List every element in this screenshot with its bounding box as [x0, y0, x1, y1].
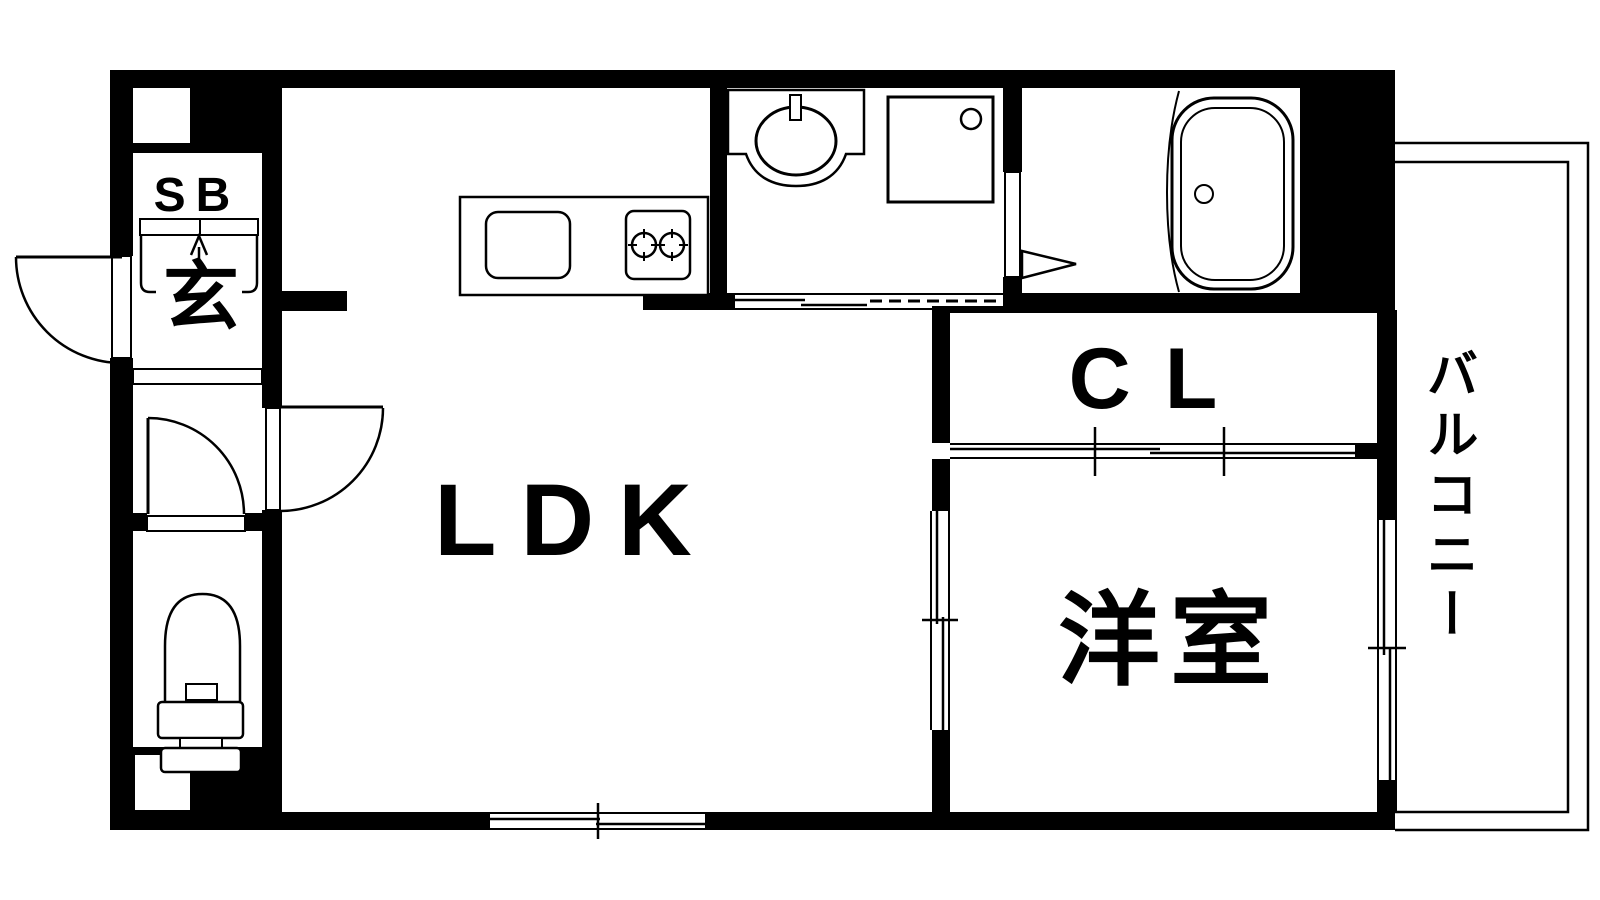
- wall-stub-kitchen: [280, 291, 347, 311]
- toilet: [158, 594, 243, 772]
- western-room-label: 洋室: [1058, 590, 1282, 692]
- entrance-corner-bracket-left: [141, 236, 156, 292]
- wall-kitchen-washroom: [710, 88, 727, 310]
- washbasin-faucet: [790, 95, 801, 120]
- wall-middle-lower: [932, 730, 950, 812]
- ldk-western-room-sliding-partition: [922, 511, 958, 730]
- wall-right-upper: [1377, 310, 1397, 520]
- toilet-lid-detail: [186, 684, 217, 700]
- wall-block-topright: [1300, 88, 1395, 310]
- wall-washroom-bath-upper: [1003, 88, 1022, 172]
- entrance-step: [133, 369, 262, 384]
- washroom-sliding-door: [735, 294, 867, 309]
- wall-stub-toilet-right: [245, 513, 262, 531]
- wall-stub-toilet-left: [133, 513, 147, 531]
- floor-plan: SB 玄 LDK CL 洋室 バルコニー: [0, 0, 1600, 900]
- shoe-box-label: SB: [154, 172, 241, 220]
- wall-hall-right: [262, 510, 282, 750]
- wall-entrance-right: [262, 153, 282, 408]
- bathtub-drain: [1195, 185, 1213, 203]
- toilet-door-threshold: [147, 516, 245, 531]
- bathroom-door-slot: [1005, 172, 1020, 277]
- wall-left-upper: [110, 88, 133, 256]
- entrance-door-swing-arc: [16, 257, 122, 363]
- ldk-door-leaf: [266, 408, 280, 510]
- meter-box-niche: [133, 88, 190, 143]
- bathtub: [1172, 98, 1293, 289]
- wall-right-lower: [1377, 780, 1397, 812]
- washing-machine-drain: [961, 109, 981, 129]
- wall-top: [110, 70, 1395, 88]
- entrance-corner-bracket-right: [242, 236, 257, 292]
- entrance-label: 玄: [163, 260, 239, 336]
- bathroom-door-direction-arrow: [1022, 251, 1076, 278]
- balcony-sliding-window: [1368, 520, 1406, 780]
- toilet-tank: [158, 702, 243, 738]
- closet-sliding-door: [950, 427, 1355, 476]
- balcony-label: バルコニー: [1421, 347, 1473, 647]
- kitchen-counter: [460, 197, 708, 295]
- wall-bottom-right: [705, 812, 1395, 830]
- toilet-door-swing-arc: [148, 418, 244, 514]
- ldk-label: LDK: [434, 469, 716, 571]
- wall-left-lower: [110, 358, 133, 812]
- wall-bottom-left: [110, 812, 490, 830]
- floor-plan-drawing: [0, 0, 1600, 900]
- wall-stub-closet-door: [1355, 443, 1377, 459]
- ldk-bottom-window: [490, 803, 705, 839]
- closet-label: CL: [1069, 336, 1252, 422]
- entrance-door-leaf: [112, 256, 131, 358]
- toilet-base: [161, 748, 241, 772]
- wall-middle-upper: [932, 310, 950, 443]
- kitchen-sink: [486, 212, 570, 278]
- ldk-door-swing-arc: [280, 408, 383, 511]
- wall-middle-mid: [932, 459, 950, 511]
